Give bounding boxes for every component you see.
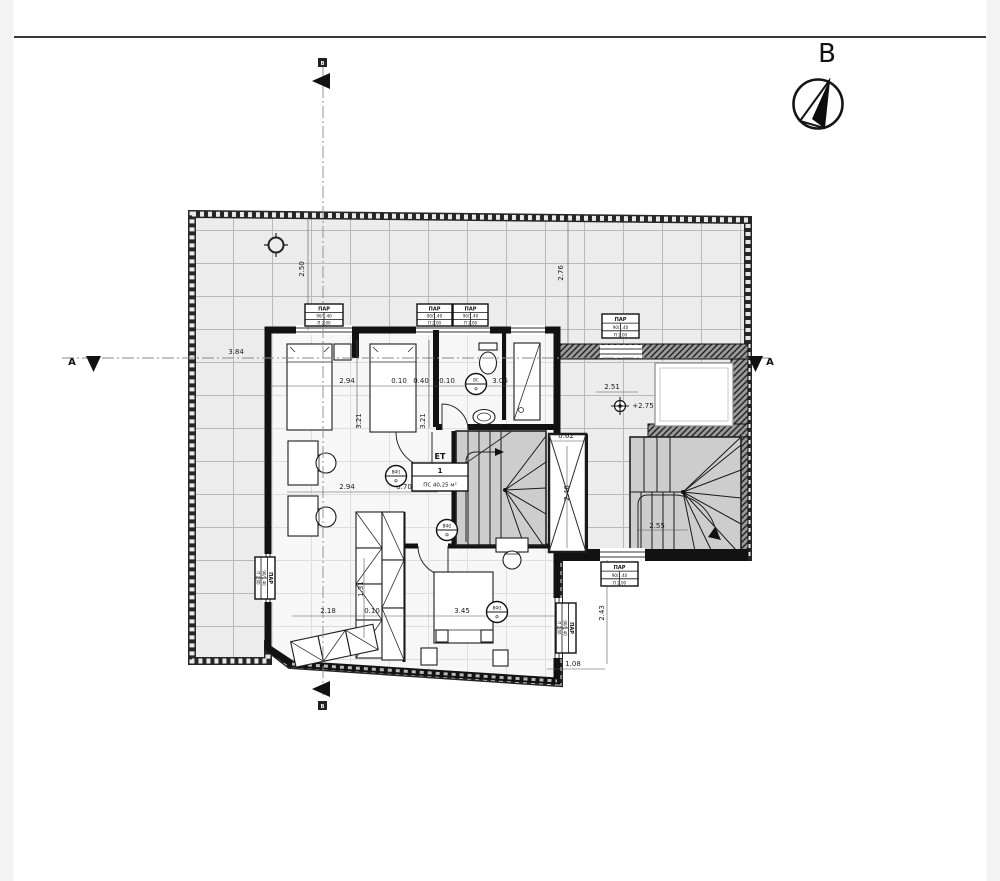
- dimension-label: 0.62: [558, 432, 574, 440]
- dimension-label: 2.55: [649, 522, 665, 530]
- window-tag: ПАР90/1.40П 2.00: [453, 304, 488, 326]
- svg-text:Ф: Ф: [474, 387, 478, 392]
- window-tag: ПАР90/1.40П 2.00: [601, 562, 638, 586]
- dimension-label: 3.45: [454, 607, 470, 615]
- desk-1: [288, 441, 318, 485]
- svg-text:B: B: [321, 704, 325, 710]
- dimension-label: 2.50: [298, 261, 306, 277]
- svg-text:ПАР: ПАР: [568, 622, 574, 634]
- sink: [473, 410, 495, 425]
- svg-text:Ф: Ф: [445, 533, 449, 538]
- dimension-label: 2.18: [320, 607, 336, 615]
- svg-text:П 2.00: П 2.00: [556, 621, 561, 635]
- dimension-label: 3.84: [228, 348, 244, 356]
- svg-text:A: A: [766, 357, 774, 368]
- room-area: ПС 40,25 м²: [423, 482, 457, 489]
- north-label: B: [818, 39, 836, 69]
- dimension-label: +2.75: [632, 402, 653, 410]
- dimension-label: 1.31: [357, 581, 365, 597]
- svg-text:ПАР: ПАР: [465, 307, 477, 313]
- section-arrow-icon: [312, 73, 330, 89]
- svg-text:A: A: [68, 357, 76, 368]
- svg-text:90/1.40: 90/1.40: [613, 325, 629, 330]
- svg-text:ВС: ВС: [473, 378, 479, 383]
- svg-text:ПАР: ПАР: [429, 307, 441, 313]
- svg-text:П 2.00: П 2.00: [464, 320, 478, 325]
- dimension-label: 2.51: [604, 383, 620, 391]
- svg-text:П 2.00: П 2.00: [317, 320, 331, 325]
- dimension-label: 2.76: [557, 265, 565, 281]
- svg-text:ВФ2: ВФ2: [443, 524, 452, 529]
- dimension-label: 3.06: [492, 377, 508, 385]
- svg-text:П 2.00: П 2.00: [428, 320, 442, 325]
- svg-text:90/1.40: 90/1.40: [612, 573, 628, 578]
- svg-text:П 2.00: П 2.00: [613, 580, 627, 585]
- window-top-right: [511, 325, 545, 335]
- door-tag: ВФ2Ф: [437, 520, 458, 541]
- nightstand-right: [493, 650, 508, 666]
- stair-opening-void: [655, 363, 733, 426]
- window-tag: ПАР90/1.40П 2.00: [556, 603, 576, 653]
- desk-2: [288, 496, 318, 536]
- dimension-label: 0.40: [413, 377, 429, 385]
- dimension-label: 2.94: [339, 483, 355, 491]
- desk-3: [496, 538, 528, 552]
- dimension-label: 0.10: [439, 377, 455, 385]
- right-wing-window: [600, 345, 642, 358]
- north-arrow: B: [794, 39, 843, 129]
- dimension-label: 2.46: [563, 485, 571, 501]
- svg-text:ПАР: ПАР: [615, 317, 627, 323]
- svg-text:B: B: [321, 61, 325, 67]
- floor-plan-page: ПАР90/1.40П 2.00ПАР90/1.40П 2.00ПАР90/1.…: [0, 0, 1000, 881]
- floor-plan-drawing: ПАР90/1.40П 2.00ПАР90/1.40П 2.00ПАР90/1.…: [0, 0, 1000, 881]
- compass-needle-fill: [812, 81, 829, 128]
- window-tag: ПАР90/1.40П 2.00: [602, 314, 639, 338]
- section-arrow-icon: [312, 681, 330, 697]
- window-tag: ПАР90/1.40П 2.00: [305, 304, 343, 326]
- svg-text:90/1.40: 90/1.40: [262, 570, 267, 586]
- bed-single-2: [370, 344, 416, 432]
- nightstand-left: [421, 648, 437, 665]
- section-arrow-icon: [86, 356, 101, 372]
- interior-stair: [456, 431, 546, 545]
- svg-text:Ф: Ф: [394, 479, 398, 484]
- svg-text:П 2.00: П 2.00: [255, 571, 260, 585]
- dimension-label: 0.10: [391, 377, 407, 385]
- dimension-label: 1.08: [565, 660, 581, 668]
- right-wing-top-wall: [557, 344, 748, 359]
- dimension-label: 0.10: [364, 607, 380, 615]
- svg-text:ВФ3: ВФ3: [493, 606, 502, 611]
- window-tag: ПАР90/1.40П 2.00: [255, 557, 275, 599]
- section-marker-b-top: B: [312, 58, 330, 89]
- dimension-label: 2.94: [339, 377, 355, 385]
- door-tag: ВФ3Ф: [487, 602, 508, 623]
- svg-text:ПАР: ПАР: [318, 307, 330, 313]
- toilet-bowl: [480, 352, 497, 374]
- page-right-gutter: [987, 0, 1000, 881]
- svg-text:Ф: Ф: [495, 615, 499, 620]
- door-tag: ВФ1Ф: [386, 466, 407, 487]
- svg-text:ПАР: ПАР: [267, 572, 273, 584]
- dimension-label: 3.21: [355, 413, 363, 429]
- svg-text:ПАР: ПАР: [614, 565, 626, 571]
- dimension-label: 2.43: [598, 605, 606, 621]
- svg-text:90/1.40: 90/1.40: [316, 314, 332, 319]
- svg-text:90/1.40: 90/1.40: [427, 314, 443, 319]
- svg-text:П 2.00: П 2.00: [614, 332, 628, 337]
- section-marker-b-bottom: B: [312, 681, 330, 710]
- svg-text:90/1.40: 90/1.40: [563, 620, 568, 636]
- room-number: 1: [438, 467, 443, 475]
- page-left-gutter: [0, 0, 13, 881]
- room-floor-label: ЕТ: [435, 452, 446, 461]
- door-tag: ВСФ: [466, 374, 487, 395]
- exterior-stair: [630, 437, 741, 556]
- toilet-tank: [479, 343, 497, 350]
- bed-single-1: [287, 344, 332, 430]
- svg-text:ВФ1: ВФ1: [392, 470, 401, 475]
- svg-text:90/1.40: 90/1.40: [463, 314, 479, 319]
- dimension-label: 3.21: [419, 413, 427, 429]
- window-tag: ПАР90/1.40П 2.00: [417, 304, 452, 326]
